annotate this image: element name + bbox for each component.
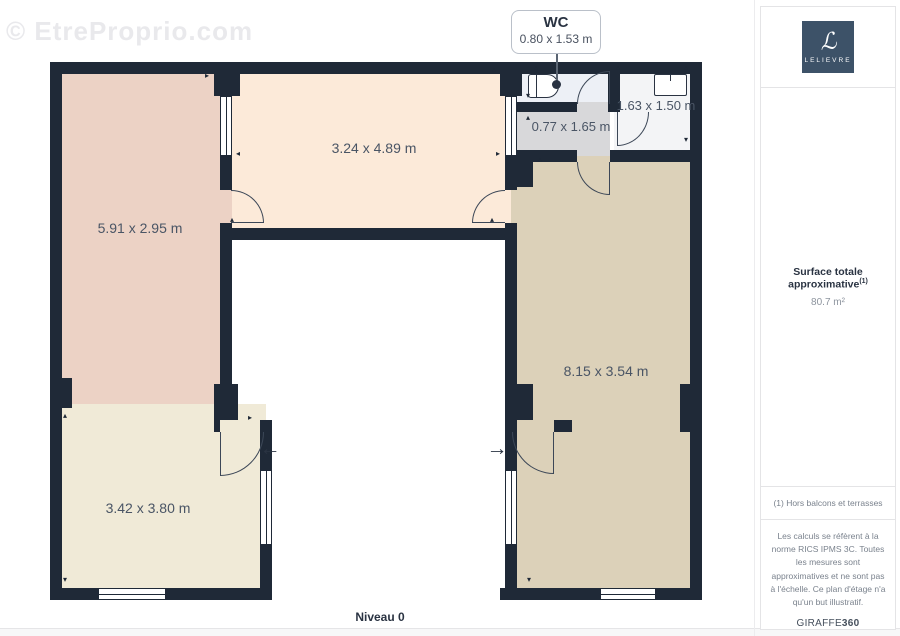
sidebar-footnote-section: (1) Hors balcons et terrasses	[761, 487, 895, 520]
wall	[260, 545, 272, 588]
window	[220, 96, 232, 156]
wall	[264, 420, 272, 432]
window	[600, 588, 656, 600]
surface-superscript: (1)	[859, 278, 868, 285]
wall	[220, 156, 232, 190]
entry-arrow-left: ←	[253, 438, 287, 459]
room-label: 3.24 x 4.89 m	[324, 140, 424, 156]
room-label: 5.91 x 2.95 m	[90, 220, 190, 236]
sidebar: ℒ LELIEVRE Surface totale approximative(…	[760, 6, 896, 630]
footnote-text: (1) Hors balcons et terrasses	[773, 498, 882, 508]
dimension-marker: ▾	[526, 92, 530, 100]
surface-total-value: 80.7 m²	[811, 297, 845, 308]
sidebar-surface-section: Surface totale approximative(1) 80.7 m²	[761, 88, 895, 487]
dimension-marker: ▾	[508, 576, 512, 584]
wall	[517, 102, 577, 112]
wall	[505, 420, 512, 432]
wall	[610, 150, 702, 162]
sidebar-logo-section: ℒ LELIEVRE	[761, 7, 895, 88]
wc-callout: WC 0.80 x 1.53 m	[511, 10, 601, 54]
dimension-marker: ▸	[205, 72, 209, 80]
room-label: 3.42 x 3.80 m	[98, 500, 198, 516]
surface-total-label: Surface totale approximative(1)	[761, 266, 895, 291]
dimension-marker: ◂	[236, 150, 240, 158]
watermark: © EtreProprio.com	[6, 16, 253, 47]
dimension-marker: ▴	[230, 216, 234, 224]
sidebar-divider	[754, 0, 755, 636]
wall	[505, 384, 533, 420]
entry-arrow-right: →	[480, 438, 514, 459]
dimension-marker: ▴	[616, 64, 620, 72]
dimension-marker: ▾	[684, 136, 688, 144]
wall	[50, 378, 72, 408]
toilet-tank-line	[536, 75, 537, 97]
sidebar-disclaimer-section: Les calculs se réfèrent à la norme RICS …	[761, 520, 895, 629]
window	[505, 470, 517, 545]
wall	[214, 420, 220, 432]
logo-text: LELIEVRE	[804, 57, 851, 64]
room-label: 8.15 x 3.54 m	[556, 363, 656, 379]
wc-callout-dimensions: 0.80 x 1.53 m	[512, 32, 600, 46]
dimension-marker: ▴	[63, 412, 67, 420]
dimension-marker: ▸	[496, 150, 500, 158]
wall	[500, 74, 522, 96]
callout-dot	[552, 80, 561, 89]
wall	[680, 384, 702, 432]
dimension-marker: ▸	[248, 414, 252, 422]
sink-faucet-line	[670, 74, 671, 81]
dimension-marker: ▴	[684, 64, 688, 72]
logo-monogram-icon: ℒ	[819, 30, 838, 55]
dimension-marker: ▾	[63, 576, 67, 584]
agency-logo: ℒ LELIEVRE	[802, 21, 854, 73]
wall	[50, 62, 62, 600]
room-label: 1.63 x 1.50 m	[613, 98, 699, 113]
brand-name: GIRAFFE	[796, 618, 841, 629]
surface-label-text: Surface totale approximative	[788, 266, 863, 291]
dimension-marker: ▴	[534, 64, 538, 72]
wall	[220, 228, 517, 240]
footer-band	[0, 629, 900, 636]
dimension-marker: ▾	[527, 576, 531, 584]
wc-callout-title: WC	[512, 14, 600, 32]
window	[505, 96, 517, 156]
room-top-left-floor	[62, 74, 232, 408]
room-label: 0.77 x 1.65 m	[528, 119, 614, 134]
wall	[554, 420, 572, 432]
dimension-marker: ▴	[490, 216, 494, 224]
floorplan-page: © EtreProprio.com	[0, 0, 900, 636]
wall	[214, 74, 240, 96]
window	[260, 470, 272, 545]
wall	[214, 384, 238, 420]
dimension-marker: ▴	[538, 156, 542, 164]
brand-suffix: 360	[842, 618, 860, 629]
dimension-marker: ▴	[64, 66, 68, 74]
disclaimer-text: Les calculs se réfèrent à la norme RICS …	[770, 530, 886, 609]
window	[98, 588, 166, 600]
dimension-marker: ▴	[492, 66, 496, 74]
level-label: Niveau 0	[330, 610, 430, 624]
brand-giraffe360: GIRAFFE360	[796, 618, 859, 629]
wall	[690, 62, 702, 600]
